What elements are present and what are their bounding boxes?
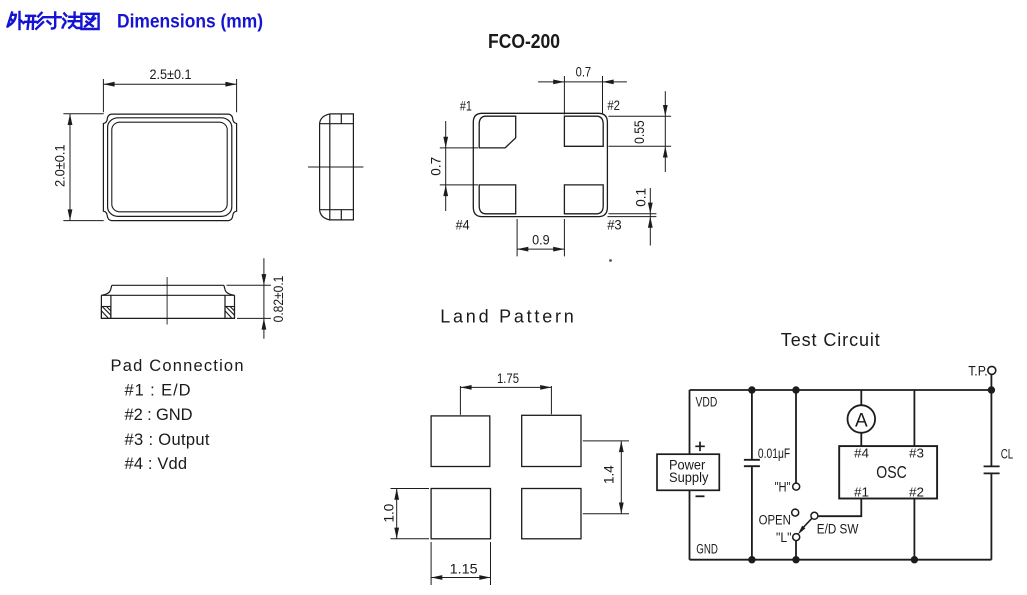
svg-text:#3: #3 xyxy=(909,447,924,461)
svg-text:0.01μF: 0.01μF xyxy=(758,446,790,461)
svg-text:0.7: 0.7 xyxy=(576,65,592,80)
svg-text:GND: GND xyxy=(696,542,718,557)
svg-text:#3: #3 xyxy=(607,217,622,232)
svg-text:T.P.: T.P. xyxy=(968,364,988,379)
svg-text:Pad Connection: Pad Connection xyxy=(111,357,244,375)
svg-text:1.15: 1.15 xyxy=(450,562,478,577)
svg-text:VDD: VDD xyxy=(696,395,718,410)
svg-text:0.55: 0.55 xyxy=(632,120,647,144)
svg-text:OSC: OSC xyxy=(876,462,907,482)
svg-text:#4 : Vdd: #4 : Vdd xyxy=(125,455,188,473)
svg-text:E/D SW: E/D SW xyxy=(817,521,859,536)
svg-text:#4: #4 xyxy=(456,217,470,232)
svg-text:CL: CL xyxy=(1001,446,1014,461)
svg-text:#1: #1 xyxy=(460,99,472,114)
svg-text:0.82±0.1: 0.82±0.1 xyxy=(271,276,286,323)
svg-text:1.4: 1.4 xyxy=(602,465,617,484)
svg-text:FCO-200: FCO-200 xyxy=(488,30,560,53)
svg-text:0.9: 0.9 xyxy=(532,233,550,248)
svg-text:Test Circuit: Test Circuit xyxy=(781,330,880,350)
svg-text:2.5±0.1: 2.5±0.1 xyxy=(150,67,192,82)
svg-text:#1: #1 xyxy=(854,486,869,500)
svg-text:"L": "L" xyxy=(776,530,792,545)
svg-text:OPEN: OPEN xyxy=(759,513,791,528)
svg-text:"H": "H" xyxy=(775,479,791,494)
svg-text:#1 : E/D: #1 : E/D xyxy=(125,382,191,400)
svg-text:#2: #2 xyxy=(607,98,620,113)
svg-text:#4: #4 xyxy=(854,447,869,461)
svg-text:Supply: Supply xyxy=(669,469,708,485)
svg-text:1.0: 1.0 xyxy=(382,504,397,523)
svg-text:Dimensions (mm): Dimensions (mm) xyxy=(117,11,263,33)
svg-text:2.0±0.1: 2.0±0.1 xyxy=(53,144,68,187)
svg-text:#3 : Output: #3 : Output xyxy=(125,431,210,449)
svg-text:#2: #2 xyxy=(909,486,924,500)
svg-text:1.75: 1.75 xyxy=(497,371,519,386)
svg-text:0.1: 0.1 xyxy=(634,188,649,207)
svg-text:0.7: 0.7 xyxy=(429,157,444,176)
svg-text:#2 : GND: #2 : GND xyxy=(125,406,193,424)
svg-text:A: A xyxy=(855,411,868,432)
